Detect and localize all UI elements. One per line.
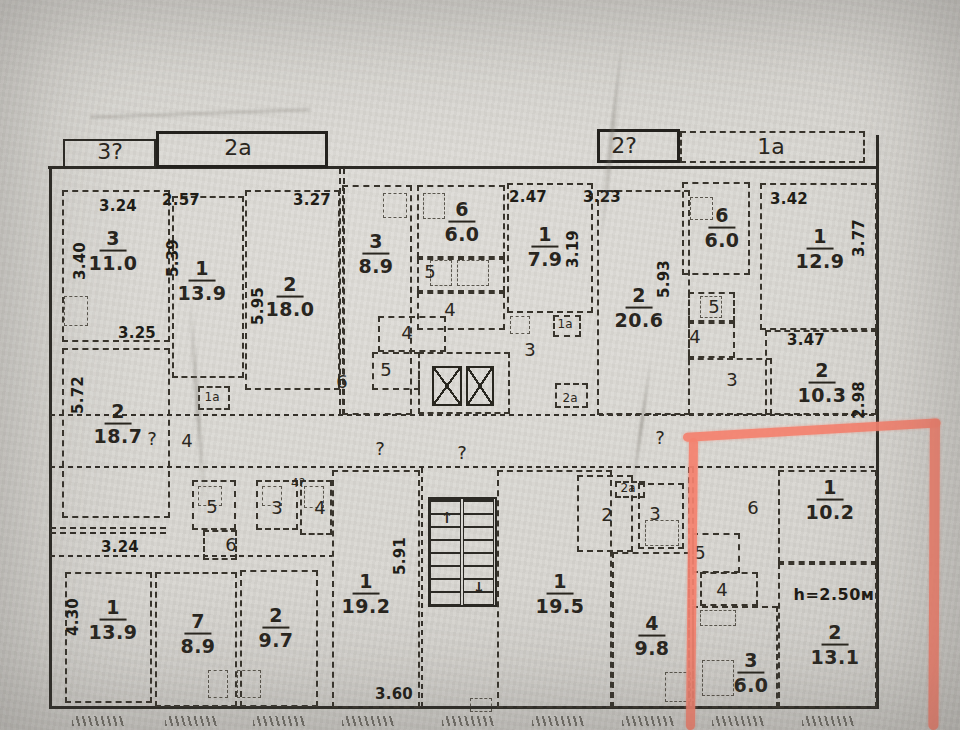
plan-label: 5: [424, 261, 435, 282]
room-area-label: 119.2: [342, 572, 391, 617]
wall-segment: [50, 527, 166, 534]
dimension-label: 2.47: [509, 188, 547, 206]
room-area: 12.9: [796, 250, 845, 272]
dimension-label: 3.42: [770, 190, 808, 208]
room-number: 1: [546, 572, 574, 595]
plan-label: ?: [655, 427, 665, 448]
balcony-hatch: [442, 716, 494, 726]
elevator-shaft-icon: [466, 366, 494, 406]
dimension-label: 3.25: [118, 324, 156, 342]
room-number: 2: [276, 275, 304, 298]
balcony-hatch: [253, 716, 305, 726]
balcony-hatch: [165, 716, 217, 726]
room-area-label: 36.0: [733, 651, 768, 696]
room-number: 6: [448, 200, 476, 223]
fixture-box: [237, 670, 261, 698]
room-area: 10.2: [806, 501, 855, 523]
highlight-line-right: [928, 419, 940, 730]
highlight-line-top: [683, 418, 941, 442]
plan-label: 3: [726, 369, 737, 390]
room-area: 6.0: [444, 223, 479, 245]
room-number: 3: [362, 232, 390, 255]
dimension-label: 3.24: [99, 197, 137, 215]
stair-arrow-icon: ↓: [473, 579, 486, 597]
plan-label: 6: [747, 497, 758, 518]
room-area-label: 113.9: [178, 259, 227, 304]
room-number: 3: [99, 229, 127, 252]
room-area: 10.3: [798, 384, 847, 406]
plan-label: 4: [716, 579, 727, 600]
dimension-label: 3.47: [787, 331, 825, 349]
room-area: 6.0: [704, 229, 739, 251]
room-box: [372, 352, 420, 390]
dimension-label: 3.24: [101, 538, 139, 556]
plan-label: 4: [689, 326, 700, 347]
room-area: 9.7: [258, 629, 293, 651]
balcony-hatch: [72, 716, 124, 726]
dimension-label: 3.19: [564, 230, 582, 268]
plan-label: 3: [649, 503, 660, 524]
room-area: 7.9: [527, 248, 562, 270]
height-note: h=2.50м: [794, 585, 875, 604]
room-number: 1: [99, 598, 127, 621]
room-area: 6.0: [733, 674, 768, 696]
dimension-label: 5.39: [164, 239, 182, 277]
room-area-label: 49.8: [634, 614, 669, 659]
plan-label: 6: [225, 534, 236, 555]
balcony-hatch: [712, 716, 764, 726]
wall-segment: [50, 555, 332, 557]
balcony-hatch: [342, 716, 394, 726]
room-number: 7: [184, 612, 212, 635]
plan-label: 2а: [621, 481, 636, 495]
fixture-box: [64, 296, 88, 326]
room-number: 1: [806, 227, 834, 250]
room-area: 20.6: [615, 309, 664, 331]
room-area: 19.5: [536, 595, 585, 617]
fixture-box: [700, 610, 736, 626]
room-area-label: 218.0: [266, 275, 315, 320]
room-area: 8.9: [358, 255, 393, 277]
fixture-box: [510, 316, 530, 334]
room-area-label: 17.9: [527, 225, 562, 270]
room-area-label: 110.2: [806, 478, 855, 523]
room-area: 13.9: [178, 282, 227, 304]
bay-label: 1а: [757, 134, 784, 159]
room-area-label: 78.9: [180, 612, 215, 657]
elevator-shaft-icon: [432, 366, 462, 406]
dimension-label: 3.77: [850, 219, 868, 257]
plan-label: 6: [336, 371, 347, 392]
plan-label: 1а: [205, 390, 220, 404]
fixture-box: [470, 698, 492, 712]
fixture-box: [645, 520, 679, 546]
floorplan-photo: 311.0113.9218.038.966.017.9220.666.0112.…: [0, 0, 960, 730]
room-area-label: 210.3: [798, 361, 847, 406]
room-area: 8.9: [180, 635, 215, 657]
room-number: 1: [531, 225, 559, 248]
room-area-label: 311.0: [89, 229, 138, 274]
fixture-box: [702, 660, 734, 696]
room-number: 2: [821, 623, 849, 646]
plan-label: 1а: [558, 317, 573, 331]
bay-label: 2?: [611, 133, 637, 158]
room-box: [700, 572, 758, 606]
dimension-label: 5.72: [69, 376, 87, 414]
plan-label: 4: [444, 299, 455, 320]
plan-label: 4: [401, 322, 412, 343]
floorplan-drawing: 311.0113.9218.038.966.017.9220.666.0112.…: [0, 0, 960, 730]
room-area-label: 113.9: [89, 598, 138, 643]
room-number: 6: [708, 206, 736, 229]
plan-label: 2а: [563, 391, 578, 405]
dimension-label: 2.57: [162, 191, 200, 209]
plan-label: 5: [206, 496, 217, 517]
room-area-label: 218.7: [94, 402, 143, 447]
room-number: 1: [816, 478, 844, 501]
balcony-hatch: [802, 716, 854, 726]
room-area: 11.0: [89, 252, 138, 274]
plan-label: 3: [524, 339, 535, 360]
plan-label: 5: [380, 359, 391, 380]
dimension-label: 4.30: [64, 598, 82, 636]
dimension-label: 5.93: [655, 260, 673, 298]
room-number: 1: [188, 259, 216, 282]
stair-arrow-icon: ↑: [441, 509, 454, 527]
dimension-label: 3.23: [583, 188, 621, 206]
plan-label: 2: [601, 504, 612, 525]
plan-label: ?: [147, 428, 157, 449]
room-number: 2: [262, 606, 290, 629]
dimension-label: 2.98: [850, 381, 868, 419]
room-area: 13.1: [811, 646, 860, 668]
room-number: 2: [625, 286, 653, 309]
balcony-hatch: [622, 716, 674, 726]
room-box: [597, 129, 680, 163]
bay-label: 2а: [224, 135, 251, 160]
bay-label: 3?: [97, 139, 123, 164]
dimension-label: 5.91: [391, 537, 409, 575]
wall-segment: [49, 168, 52, 709]
room-number: 4: [638, 614, 666, 637]
room-area-label: 213.1: [811, 623, 860, 668]
wall-segment: [421, 467, 423, 707]
plan-label: ?: [457, 442, 467, 463]
balcony-hatch: [532, 716, 584, 726]
room-area-label: 29.7: [258, 606, 293, 651]
room-number: 1: [352, 572, 380, 595]
fixture-box: [208, 670, 228, 698]
fixture-box: [457, 260, 489, 286]
room-area: 13.9: [89, 621, 138, 643]
room-area: 19.2: [342, 595, 391, 617]
room-area: 18.0: [266, 298, 315, 320]
room-area-label: 66.0: [704, 206, 739, 251]
dimension-label: 3.27: [293, 191, 331, 209]
plan-label: ?: [375, 438, 385, 459]
plan-label: 4: [314, 497, 325, 518]
plan-label: 5: [708, 296, 719, 317]
room-number: 2: [808, 361, 836, 384]
room-area-label: 119.5: [536, 572, 585, 617]
plan-label: 4?: [291, 476, 305, 490]
dimension-label: 3.40: [71, 242, 89, 280]
plan-label: 4: [181, 430, 192, 451]
room-area: 18.7: [94, 425, 143, 447]
dimension-label: 5.95: [249, 287, 267, 325]
room-number: 3: [737, 651, 765, 674]
room-area-label: 66.0: [444, 200, 479, 245]
room-area-label: 38.9: [358, 232, 393, 277]
room-area: 9.8: [634, 637, 669, 659]
fixture-box: [383, 193, 407, 218]
dimension-label: 3.60: [375, 685, 413, 703]
room-area-label: 112.9: [796, 227, 845, 272]
wall-segment: [50, 466, 876, 468]
fixture-box: [423, 193, 445, 219]
room-number: 2: [104, 402, 132, 425]
plan-label: 3: [271, 497, 282, 518]
